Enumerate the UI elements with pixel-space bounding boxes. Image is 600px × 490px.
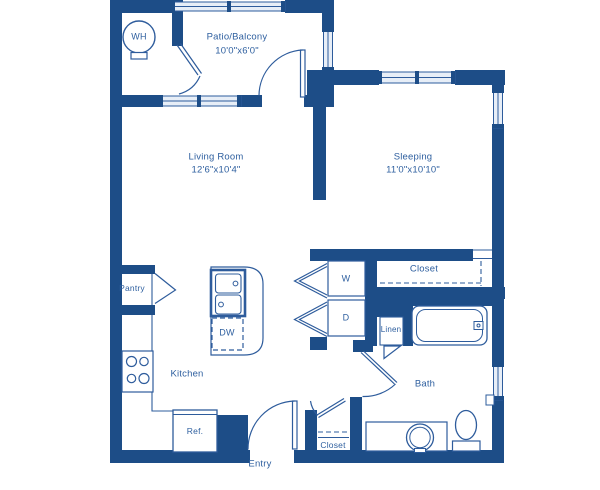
pantry-door [155,274,176,304]
patio-top-window [171,1,285,12]
entry-door [248,401,297,450]
bath-door [361,351,397,397]
kitchen-label: Kitchen [170,369,203,379]
dryer-label: D [343,314,350,323]
entry-closet-label: Closet [320,441,345,450]
entry-label: Entry [248,459,271,469]
entry-closet-rod [318,432,349,438]
sleeping-dimensions: 11'0"x10'10" [386,165,440,175]
sleeping-room-label: Sleeping [394,152,433,162]
refrigerator-label: Ref. [187,427,203,436]
linen-label: Linen [381,326,402,334]
kitchen-island [211,267,263,355]
pantry-label: Pantry [119,284,145,293]
washer-dryer-bifold-doors [295,264,328,337]
linen-door [384,346,401,359]
patio-door [259,50,305,97]
living-room-label: Living Room [188,152,243,162]
floor-plan-drawing [0,0,600,490]
living-room-window [159,95,241,107]
stove [122,351,153,392]
bedroom-closet-label: Closet [410,264,438,274]
living-room-dimensions: 12'6"x10'4" [191,165,240,175]
sleeping-top-window [378,71,455,84]
dishwasher-label: DW [219,329,234,338]
bath-vanity [366,422,447,453]
bath-label: Bath [415,379,435,389]
patio-room-label: Patio/Balcony [207,32,268,42]
toilet [453,411,481,452]
wh-closet-door [177,44,202,95]
patio-dimensions: 10'0"x6'0" [215,46,259,56]
patio-side-window [322,28,334,71]
sleeping-side-window [492,89,504,128]
walls [110,0,505,463]
floor-plan-canvas: WH Patio/Balcony 10'0"x6'0" Living Room … [0,0,600,490]
water-heater-label: WH [131,33,146,42]
bedroom-closet-opening [473,250,492,259]
washer-label: W [342,275,351,284]
bathtub [412,306,487,345]
bath-window [486,363,504,405]
